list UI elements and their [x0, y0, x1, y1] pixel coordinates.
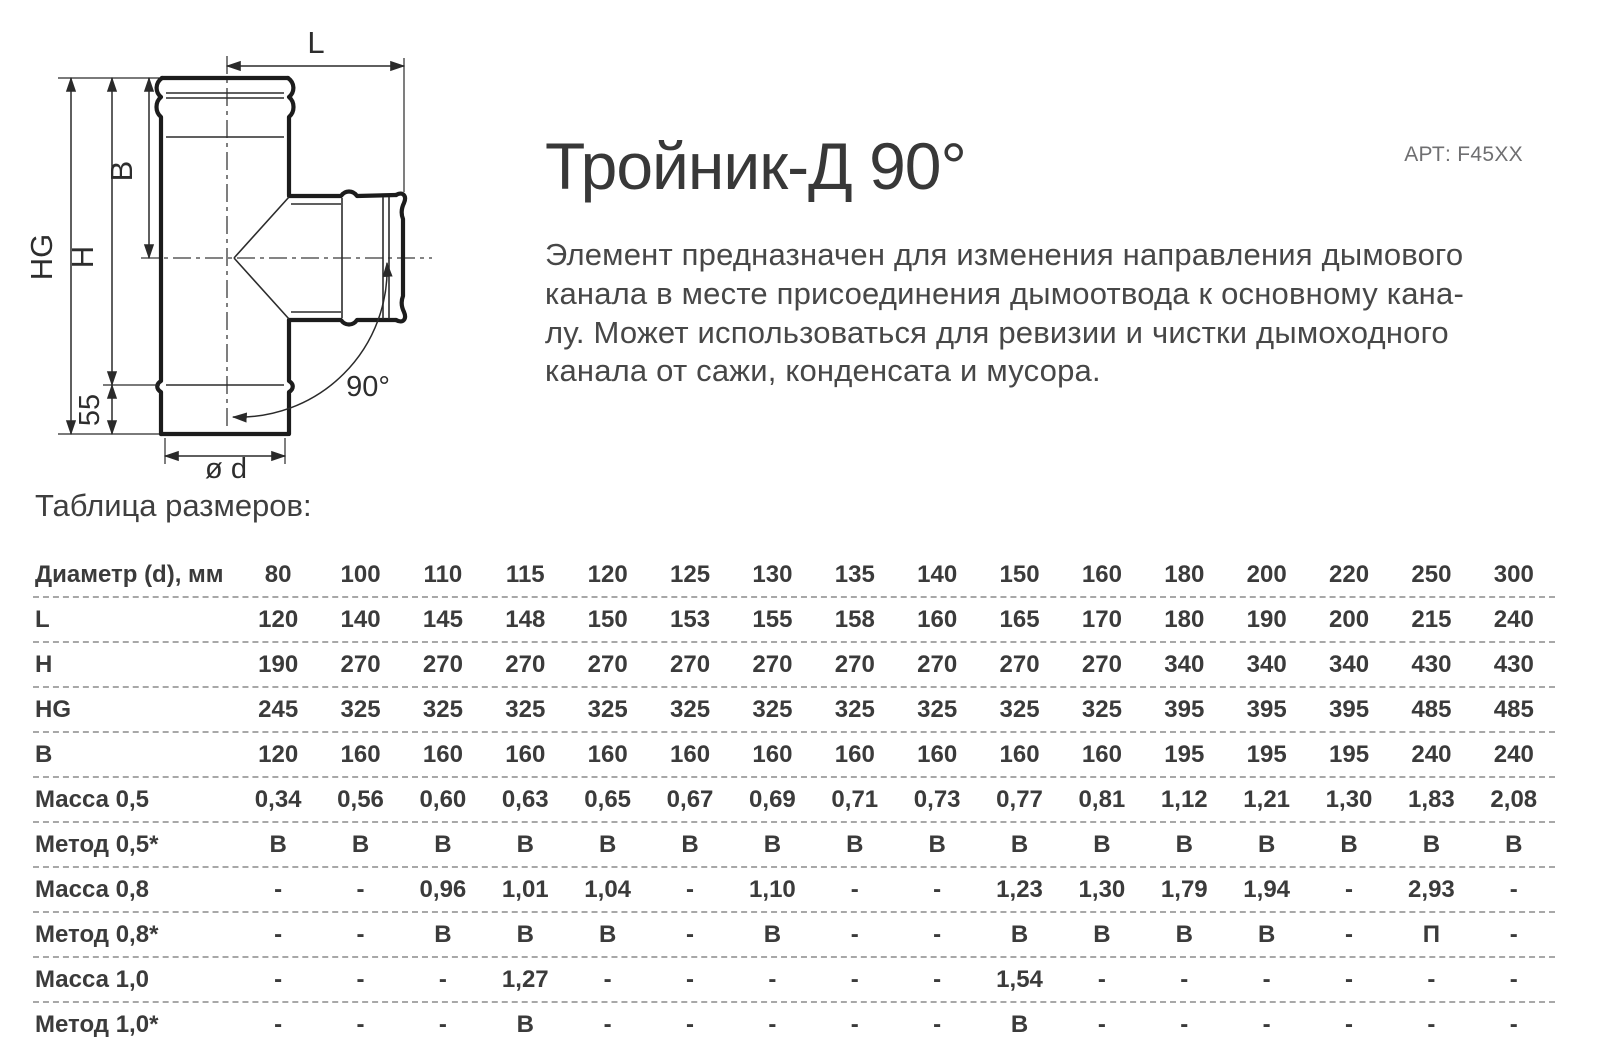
table-cell: 1,30	[1308, 786, 1390, 814]
table-row: Масса 0,8--0,961,011,04-1,10--1,231,301,…	[33, 868, 1555, 913]
table-cell: 1,23	[978, 876, 1060, 904]
table-cell: 180	[1143, 606, 1225, 634]
column-header: 150	[978, 561, 1060, 589]
table-caption: Таблица размеров:	[35, 488, 312, 524]
table-cell: 325	[731, 696, 813, 724]
table-cell: -	[237, 921, 319, 949]
table-cell: -	[1143, 966, 1225, 994]
table-cell: 160	[896, 741, 978, 769]
table-cell: В	[484, 1011, 566, 1039]
table-row: Метод 0,8*--ВВВ-В--ВВВВ-П-	[33, 913, 1555, 958]
row-label: Масса 0,8	[33, 876, 237, 904]
table-cell: 0,65	[566, 786, 648, 814]
table-row: Метод 1,0*---В-----В------	[33, 1003, 1555, 1046]
table-cell: -	[1473, 1011, 1555, 1039]
table-cell: -	[319, 1011, 401, 1039]
table-cell: -	[896, 876, 978, 904]
table-cell: -	[1143, 1011, 1225, 1039]
table-cell: 1,79	[1143, 876, 1225, 904]
table-cell: 1,54	[978, 966, 1060, 994]
table-cell: В	[978, 921, 1060, 949]
table-cell: В	[1061, 831, 1143, 859]
table-cell: 395	[1225, 696, 1307, 724]
table-cell: В	[402, 921, 484, 949]
table-cell: -	[1473, 921, 1555, 949]
column-header: 125	[649, 561, 731, 589]
product-description: Элемент предназначен для изменения напра…	[545, 236, 1555, 391]
table-cell: 325	[319, 696, 401, 724]
table-cell: В	[978, 831, 1060, 859]
table-cell: В	[649, 831, 731, 859]
table-cell: 430	[1473, 651, 1555, 679]
column-header: 300	[1473, 561, 1555, 589]
table-cell: 190	[1225, 606, 1307, 634]
table-cell: -	[1308, 966, 1390, 994]
table-header-row: Диаметр (d), мм8010011011512012513013514…	[33, 553, 1555, 598]
table-cell: В	[1390, 831, 1472, 859]
column-header: 160	[1061, 561, 1143, 589]
table-cell: -	[319, 966, 401, 994]
table-cell: 340	[1225, 651, 1307, 679]
table-cell: -	[649, 921, 731, 949]
table-cell: В	[1143, 831, 1225, 859]
table-cell: 270	[566, 651, 648, 679]
table-cell: -	[319, 921, 401, 949]
table-cell: 325	[978, 696, 1060, 724]
table-cell: 0,96	[402, 876, 484, 904]
branch-top-edge	[289, 192, 396, 197]
table-cell: 325	[896, 696, 978, 724]
dim-label-L: L	[307, 25, 324, 60]
table-cell: 160	[402, 741, 484, 769]
table-row: Метод 0,5*ВВВВВВВВВВВВВВВВ	[33, 823, 1555, 868]
table-cell: 325	[1061, 696, 1143, 724]
table-cell: 0,69	[731, 786, 813, 814]
table-cell: 0,81	[1061, 786, 1143, 814]
dim-label-B: B	[104, 161, 139, 182]
table-cell: 270	[978, 651, 1060, 679]
table-cell: 395	[1143, 696, 1225, 724]
table-cell: 0,71	[814, 786, 896, 814]
table-cell: 0,63	[484, 786, 566, 814]
table-cell: 158	[814, 606, 896, 634]
description-line: лу. Может использоваться для ревизии и ч…	[545, 314, 1555, 353]
table-cell: 2,08	[1473, 786, 1555, 814]
table-cell: -	[402, 1011, 484, 1039]
table-cell: 1,21	[1225, 786, 1307, 814]
table-cell: 1,27	[484, 966, 566, 994]
table-cell: 245	[237, 696, 319, 724]
table-cell: -	[1390, 966, 1472, 994]
table-cell: 1,12	[1143, 786, 1225, 814]
table-cell: -	[896, 921, 978, 949]
column-header: 220	[1308, 561, 1390, 589]
table-cell: -	[237, 876, 319, 904]
table-cell: -	[566, 966, 648, 994]
table-cell: П	[1390, 921, 1472, 949]
tee-pipe-diagram: L HG H B 55 ø d 90°	[0, 0, 500, 500]
table-cell: В	[237, 831, 319, 859]
table-cell: 240	[1390, 741, 1472, 769]
table-cell: В	[1308, 831, 1390, 859]
table-cell: В	[484, 831, 566, 859]
table-cell: -	[649, 966, 731, 994]
table-cell: В	[731, 831, 813, 859]
table-cell: 0,67	[649, 786, 731, 814]
table-cell: -	[896, 1011, 978, 1039]
table-row: B120160160160160160160160160160160195195…	[33, 733, 1555, 778]
table-cell: 160	[978, 741, 1060, 769]
dim-label-H: H	[65, 246, 100, 268]
table-cell: -	[1308, 921, 1390, 949]
table-cell: -	[1061, 1011, 1143, 1039]
table-cell: 270	[484, 651, 566, 679]
table-cell: 0,34	[237, 786, 319, 814]
table-cell: 325	[402, 696, 484, 724]
table-cell: В	[484, 921, 566, 949]
table-cell: В	[1225, 831, 1307, 859]
column-header: 110	[402, 561, 484, 589]
table-cell: -	[1308, 876, 1390, 904]
table-cell: 2,93	[1390, 876, 1472, 904]
table-cell: В	[1143, 921, 1225, 949]
description-line: Элемент предназначен для изменения напра…	[545, 236, 1555, 275]
table-cell: 120	[237, 606, 319, 634]
table-cell: -	[1308, 1011, 1390, 1039]
table-cell: 148	[484, 606, 566, 634]
column-header: 180	[1143, 561, 1225, 589]
table-cell: 120	[237, 741, 319, 769]
table-cell: 165	[978, 606, 1060, 634]
table-cell: -	[896, 966, 978, 994]
description-line: канала в месте присоединения дымоотвода …	[545, 275, 1555, 314]
column-header: 200	[1225, 561, 1307, 589]
table-cell: 0,73	[896, 786, 978, 814]
row-label: Масса 1,0	[33, 966, 237, 994]
table-cell: -	[814, 966, 896, 994]
table-cell: В	[566, 921, 648, 949]
table-cell: 0,60	[402, 786, 484, 814]
table-cell: 160	[484, 741, 566, 769]
row-label: Метод 0,5*	[33, 831, 237, 859]
table-cell: -	[1225, 1011, 1307, 1039]
table-cell: В	[1225, 921, 1307, 949]
column-header: 135	[814, 561, 896, 589]
table-cell: 430	[1390, 651, 1472, 679]
row-label: B	[33, 741, 237, 769]
branch-bottom-edge	[289, 320, 396, 325]
table-row: H190270270270270270270270270270270340340…	[33, 643, 1555, 688]
table-cell: 340	[1308, 651, 1390, 679]
table-cell: -	[237, 1011, 319, 1039]
technical-drawing: L HG H B 55 ø d 90°	[0, 0, 500, 500]
table-cell: 160	[649, 741, 731, 769]
table-row: Масса 0,50,340,560,600,630,650,670,690,7…	[33, 778, 1555, 823]
table-cell: 325	[814, 696, 896, 724]
pipe-right-wall-lower	[289, 320, 293, 434]
table-cell: -	[814, 876, 896, 904]
row-label: Метод 1,0*	[33, 1011, 237, 1039]
table-cell: 270	[1061, 651, 1143, 679]
table-cell: -	[566, 1011, 648, 1039]
table-cell: 1,94	[1225, 876, 1307, 904]
table-cell: -	[402, 966, 484, 994]
table-cell: 160	[319, 741, 401, 769]
table-cell: 140	[319, 606, 401, 634]
table-cell: 0,77	[978, 786, 1060, 814]
pipe-right-wall-upper	[288, 78, 294, 195]
table-cell: В	[402, 831, 484, 859]
column-header: 80	[237, 561, 319, 589]
table-cell: 145	[402, 606, 484, 634]
row-label: HG	[33, 696, 237, 724]
table-cell: -	[814, 921, 896, 949]
table-cell: В	[814, 831, 896, 859]
cone-lower-line	[234, 258, 289, 319]
table-cell: В	[566, 831, 648, 859]
column-header: 250	[1390, 561, 1472, 589]
table-cell: 270	[319, 651, 401, 679]
dim-label-55: 55	[74, 394, 106, 426]
table-cell: В	[319, 831, 401, 859]
table-cell: 190	[237, 651, 319, 679]
table-cell: -	[1061, 966, 1143, 994]
table-cell: 270	[896, 651, 978, 679]
table-cell: -	[731, 1011, 813, 1039]
cone-upper-line	[234, 197, 289, 258]
table-cell: -	[1390, 1011, 1472, 1039]
table-cell: В	[1061, 921, 1143, 949]
table-cell: 195	[1308, 741, 1390, 769]
dim-label-diameter: ø d	[205, 453, 247, 485]
dim-label-angle: 90°	[346, 371, 390, 403]
row-label: H	[33, 651, 237, 679]
table-cell: 240	[1473, 741, 1555, 769]
table-cell: В	[1473, 831, 1555, 859]
dim-label-HG: HG	[24, 234, 59, 281]
pipe-left-wall	[157, 78, 163, 434]
table-cell: 1,04	[566, 876, 648, 904]
table-cell: 1,30	[1061, 876, 1143, 904]
table-cell: 155	[731, 606, 813, 634]
table-cell: 160	[731, 741, 813, 769]
table-cell: 240	[1473, 606, 1555, 634]
table-cell: 395	[1308, 696, 1390, 724]
table-cell: 153	[649, 606, 731, 634]
product-title: Тройник-Д 90°	[545, 128, 966, 204]
table-cell: 0,56	[319, 786, 401, 814]
table-cell: 160	[1061, 741, 1143, 769]
table-cell: 200	[1308, 606, 1390, 634]
table-cell: 160	[896, 606, 978, 634]
table-cell: 1,10	[731, 876, 813, 904]
table-cell: -	[319, 876, 401, 904]
table-cell: 325	[566, 696, 648, 724]
table-cell: 160	[814, 741, 896, 769]
table-cell: -	[649, 1011, 731, 1039]
table-row: Масса 1,0---1,27-----1,54------	[33, 958, 1555, 1003]
table-cell: 270	[649, 651, 731, 679]
table-cell: В	[896, 831, 978, 859]
row-label: Метод 0,8*	[33, 921, 237, 949]
column-header: 100	[319, 561, 401, 589]
table-cell: 270	[814, 651, 896, 679]
table-cell: -	[814, 1011, 896, 1039]
table-cell: 160	[566, 741, 648, 769]
table-cell: В	[978, 1011, 1060, 1039]
table-cell: В	[731, 921, 813, 949]
table-cell: 325	[484, 696, 566, 724]
table-cell: 485	[1473, 696, 1555, 724]
table-cell: -	[1473, 966, 1555, 994]
column-header: 115	[484, 561, 566, 589]
table-cell: -	[1225, 966, 1307, 994]
table-cell: 170	[1061, 606, 1143, 634]
table-cell: 270	[731, 651, 813, 679]
table-cell: 485	[1390, 696, 1472, 724]
table-cell: -	[1473, 876, 1555, 904]
table-cell: 215	[1390, 606, 1472, 634]
column-header: 140	[896, 561, 978, 589]
table-cell: 270	[402, 651, 484, 679]
column-header: 120	[566, 561, 648, 589]
row-label: Масса 0,5	[33, 786, 237, 814]
table-cell: -	[731, 966, 813, 994]
table-cell: 150	[566, 606, 648, 634]
table-cell: 325	[649, 696, 731, 724]
size-table: Диаметр (d), мм8010011011512012513013514…	[33, 553, 1555, 1046]
table-row: L120140145148150153155158160165170180190…	[33, 598, 1555, 643]
table-cell: 1,01	[484, 876, 566, 904]
table-cell: 1,83	[1390, 786, 1472, 814]
table-row: HG24532532532532532532532532532532539539…	[33, 688, 1555, 733]
table-cell: -	[649, 876, 731, 904]
diameter-header-label: Диаметр (d), мм	[33, 561, 237, 589]
table-cell: -	[237, 966, 319, 994]
table-cell: 195	[1225, 741, 1307, 769]
table-cell: 195	[1143, 741, 1225, 769]
description-line: канала от сажи, конденсата и мусора.	[545, 352, 1555, 391]
row-label: L	[33, 606, 237, 634]
article-code: АРТ: F45XX	[1404, 143, 1523, 167]
column-header: 130	[731, 561, 813, 589]
table-cell: 340	[1143, 651, 1225, 679]
